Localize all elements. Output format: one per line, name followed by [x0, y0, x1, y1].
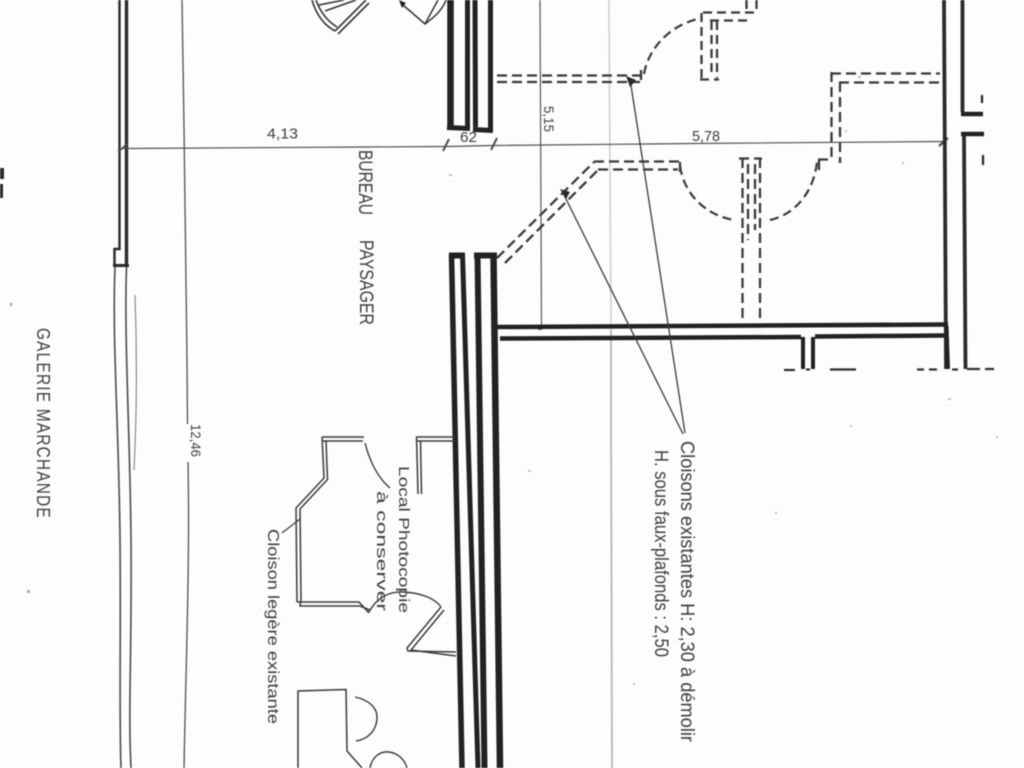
svg-text:Cloisons existantes H: 2,30: Cloisons existantes H: 2,30 à démolir [676, 441, 697, 743]
svg-text:12,46: 12,46 [188, 424, 204, 457]
svg-text:H. sous faux-plafonds : 2,50: H. sous faux-plafonds : 2,50 [650, 450, 671, 657]
svg-text:Local Photocopie: Local Photocopie [395, 466, 411, 613]
svg-text:4,13: 4,13 [267, 126, 298, 143]
svg-text:Cloison legère existante: Cloison legère existante [264, 529, 281, 724]
svg-text:PAYSAGER: PAYSAGER [355, 240, 376, 325]
svg-text:BUREAU: BUREAU [354, 150, 375, 215]
svg-text:à conserver: à conserver [373, 491, 389, 611]
svg-text:5,15: 5,15 [541, 106, 557, 132]
svg-text:5,78: 5,78 [692, 128, 720, 145]
svg-text:GALERIE MARCHANDE: GALERIE MARCHANDE [33, 328, 53, 519]
